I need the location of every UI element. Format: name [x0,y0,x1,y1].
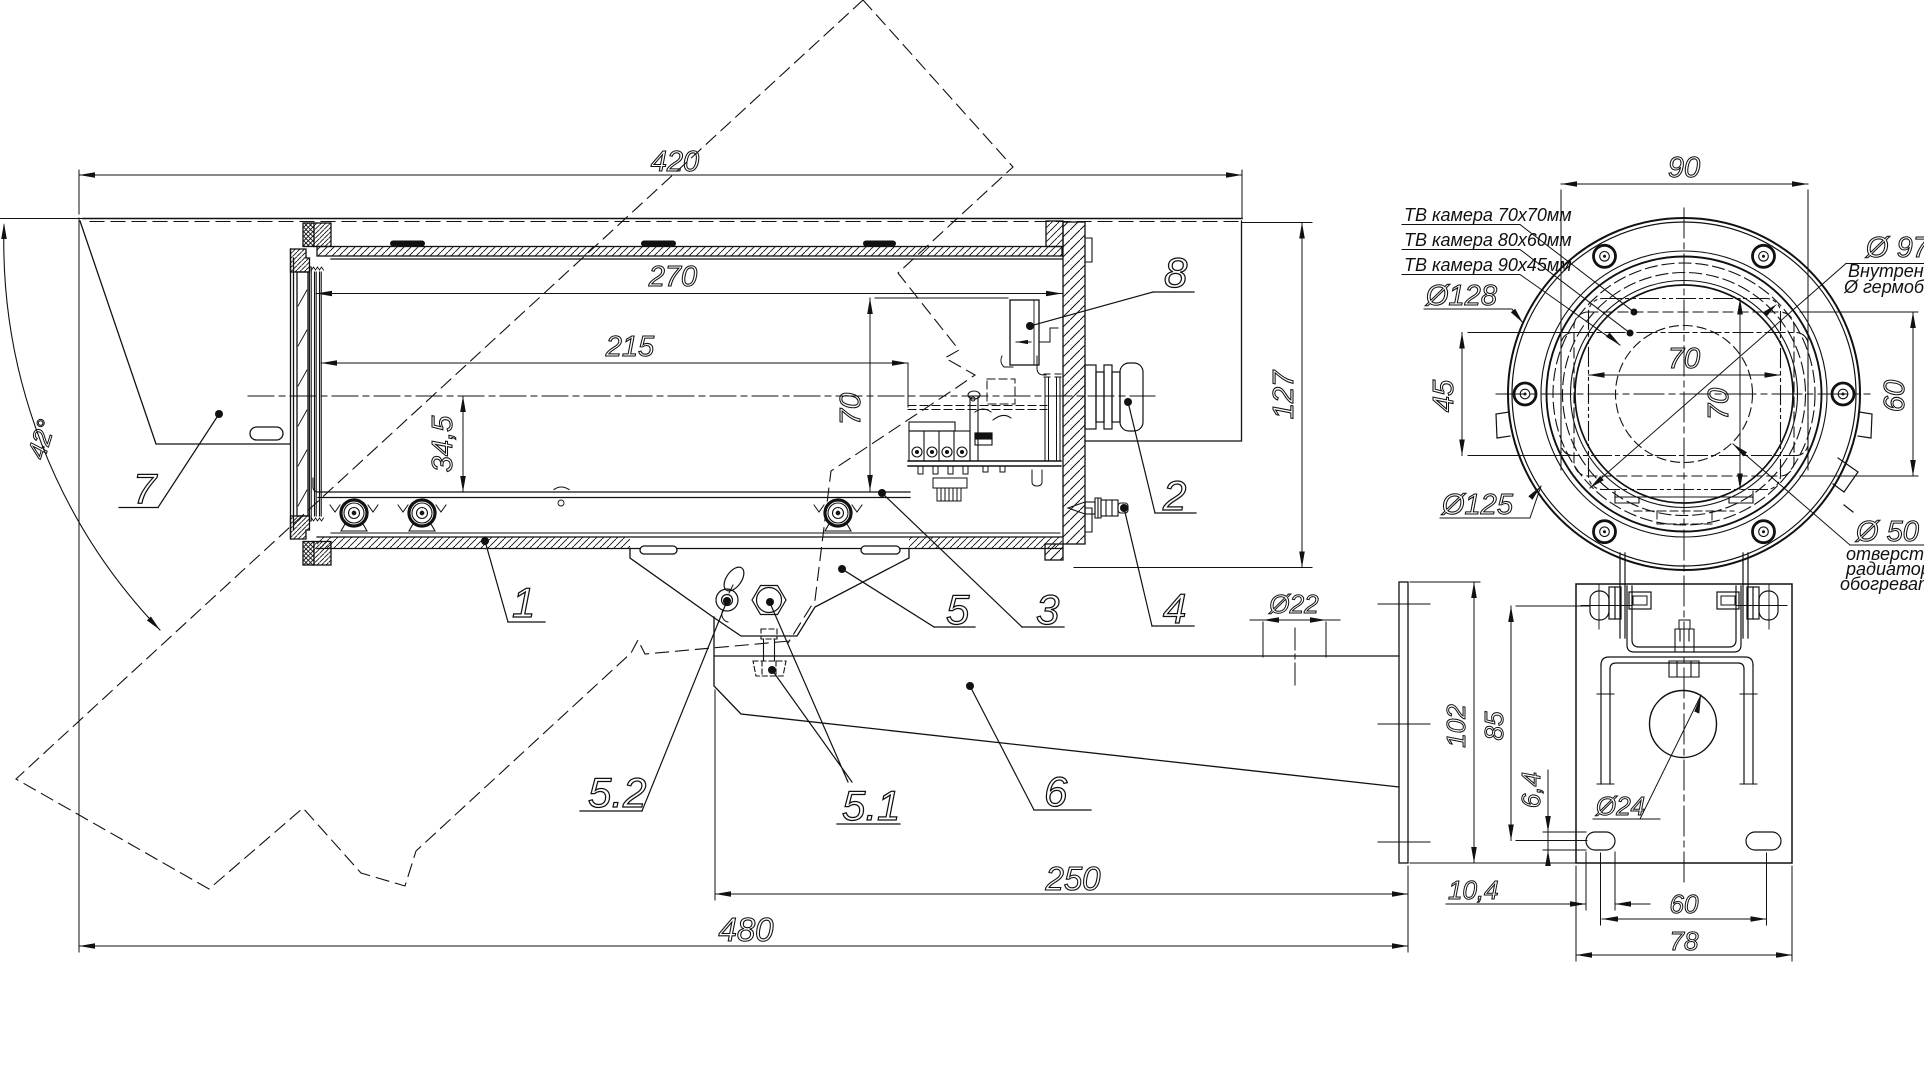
svg-text:Ø125: Ø125 [1441,489,1514,521]
svg-text:60: 60 [1879,380,1911,412]
svg-text:ТВ камера 80х60мм: ТВ камера 80х60мм [1404,230,1572,250]
svg-text:78: 78 [1670,926,1699,956]
svg-text:85: 85 [1479,711,1509,740]
svg-text:Ø гермобокса: Ø гермобокса [1843,277,1924,297]
svg-text:250: 250 [1044,860,1101,897]
svg-text:420: 420 [651,146,699,178]
svg-text:обогревателя: обогревателя [1840,574,1924,594]
svg-text:6: 6 [1044,768,1068,815]
svg-text:3: 3 [1036,586,1059,633]
svg-text:480: 480 [718,911,774,948]
svg-text:10,4: 10,4 [1448,875,1499,905]
svg-text:1: 1 [512,579,535,626]
svg-text:6,4: 6,4 [1516,772,1546,808]
svg-text:Ø128: Ø128 [1425,280,1497,312]
svg-text:Ø24: Ø24 [1595,791,1645,821]
svg-text:5.1: 5.1 [842,782,900,829]
svg-text:102: 102 [1441,704,1471,748]
svg-text:70: 70 [1703,388,1735,420]
svg-text:34,5: 34,5 [427,415,459,472]
svg-text:127: 127 [1268,369,1300,419]
svg-text:90: 90 [1668,152,1700,184]
svg-text:5: 5 [946,586,970,633]
svg-text:215: 215 [605,331,655,363]
svg-text:ТВ камера 70х70мм: ТВ камера 70х70мм [1404,205,1572,225]
svg-text:70: 70 [1668,343,1700,375]
svg-text:5.2: 5.2 [588,769,646,816]
svg-text:ТВ камера 90х45мм: ТВ камера 90х45мм [1404,255,1572,275]
svg-text:7: 7 [133,465,158,512]
svg-text:42°: 42° [21,416,61,462]
svg-text:70: 70 [835,393,867,425]
svg-text:Ø22: Ø22 [1268,589,1319,619]
svg-text:45: 45 [1428,379,1460,412]
svg-text:2: 2 [1162,472,1186,519]
svg-text:270: 270 [648,261,697,293]
svg-text:Ø 97: Ø 97 [1865,232,1924,264]
svg-text:4: 4 [1163,585,1186,632]
svg-text:8: 8 [1164,249,1188,296]
svg-text:60: 60 [1670,889,1699,919]
